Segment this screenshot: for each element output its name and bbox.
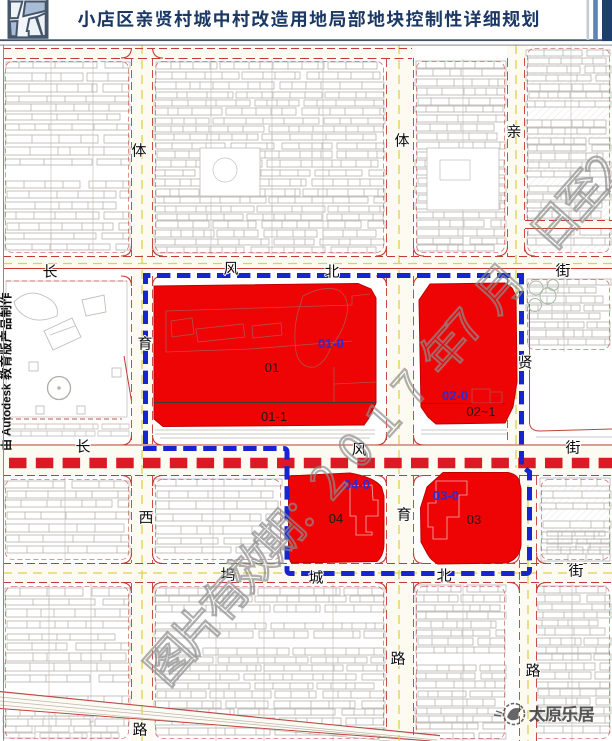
svg-text:04: 04 (329, 511, 343, 526)
svg-text:02~1: 02~1 (466, 404, 495, 419)
svg-text:03: 03 (467, 512, 481, 527)
svg-text:02-0: 02-0 (442, 388, 468, 403)
svg-text:01-0: 01-0 (318, 336, 344, 351)
svg-text:03-0: 03-0 (433, 488, 459, 503)
svg-text:01: 01 (265, 360, 279, 375)
svg-text:01-1: 01-1 (261, 409, 287, 424)
